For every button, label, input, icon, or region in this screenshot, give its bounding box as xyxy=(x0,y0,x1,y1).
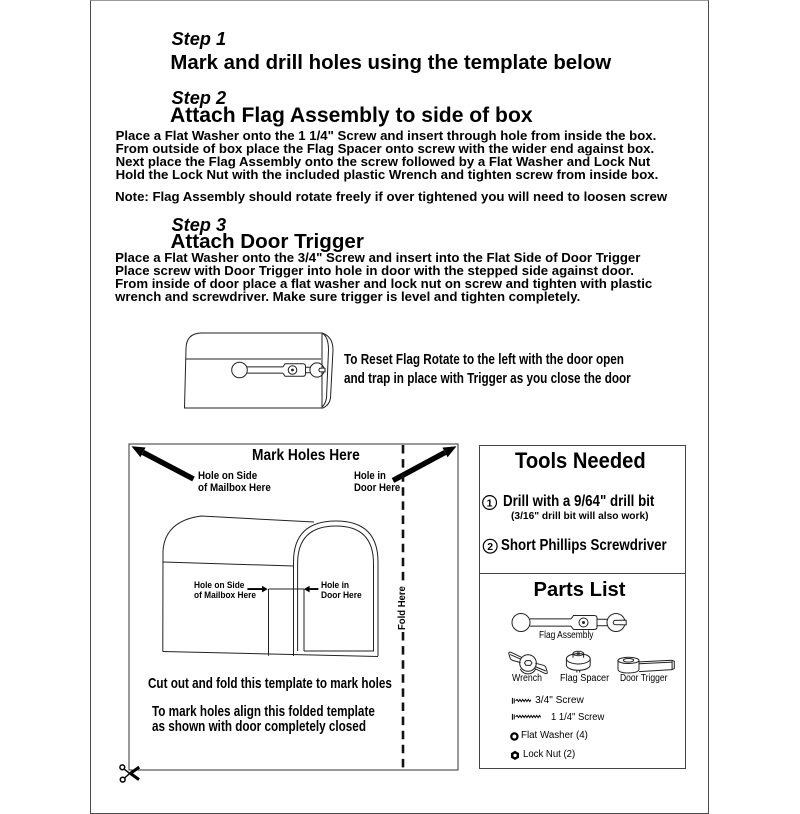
svg-text:2: 2 xyxy=(487,541,493,553)
svg-text:1: 1 xyxy=(487,497,493,509)
